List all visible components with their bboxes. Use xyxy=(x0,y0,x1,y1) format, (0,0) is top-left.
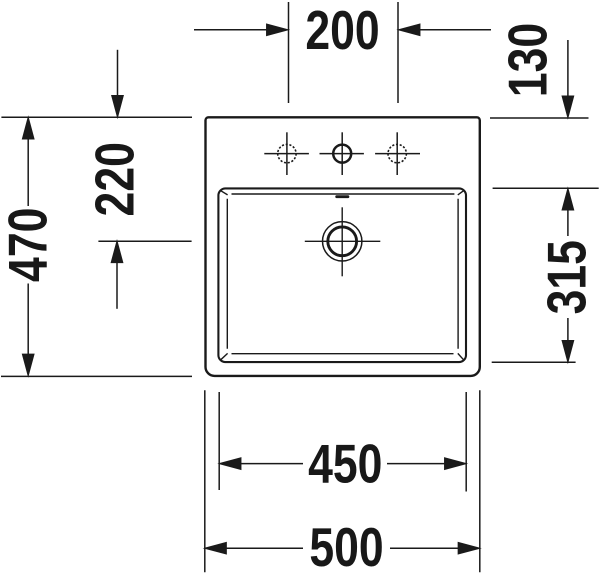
svg-text:200: 200 xyxy=(305,0,379,61)
svg-text:315: 315 xyxy=(536,240,598,314)
svg-text:130: 130 xyxy=(497,23,559,97)
svg-text:220: 220 xyxy=(84,142,146,216)
svg-text:500: 500 xyxy=(309,516,383,578)
svg-text:450: 450 xyxy=(308,433,382,495)
svg-text:470: 470 xyxy=(0,208,58,282)
